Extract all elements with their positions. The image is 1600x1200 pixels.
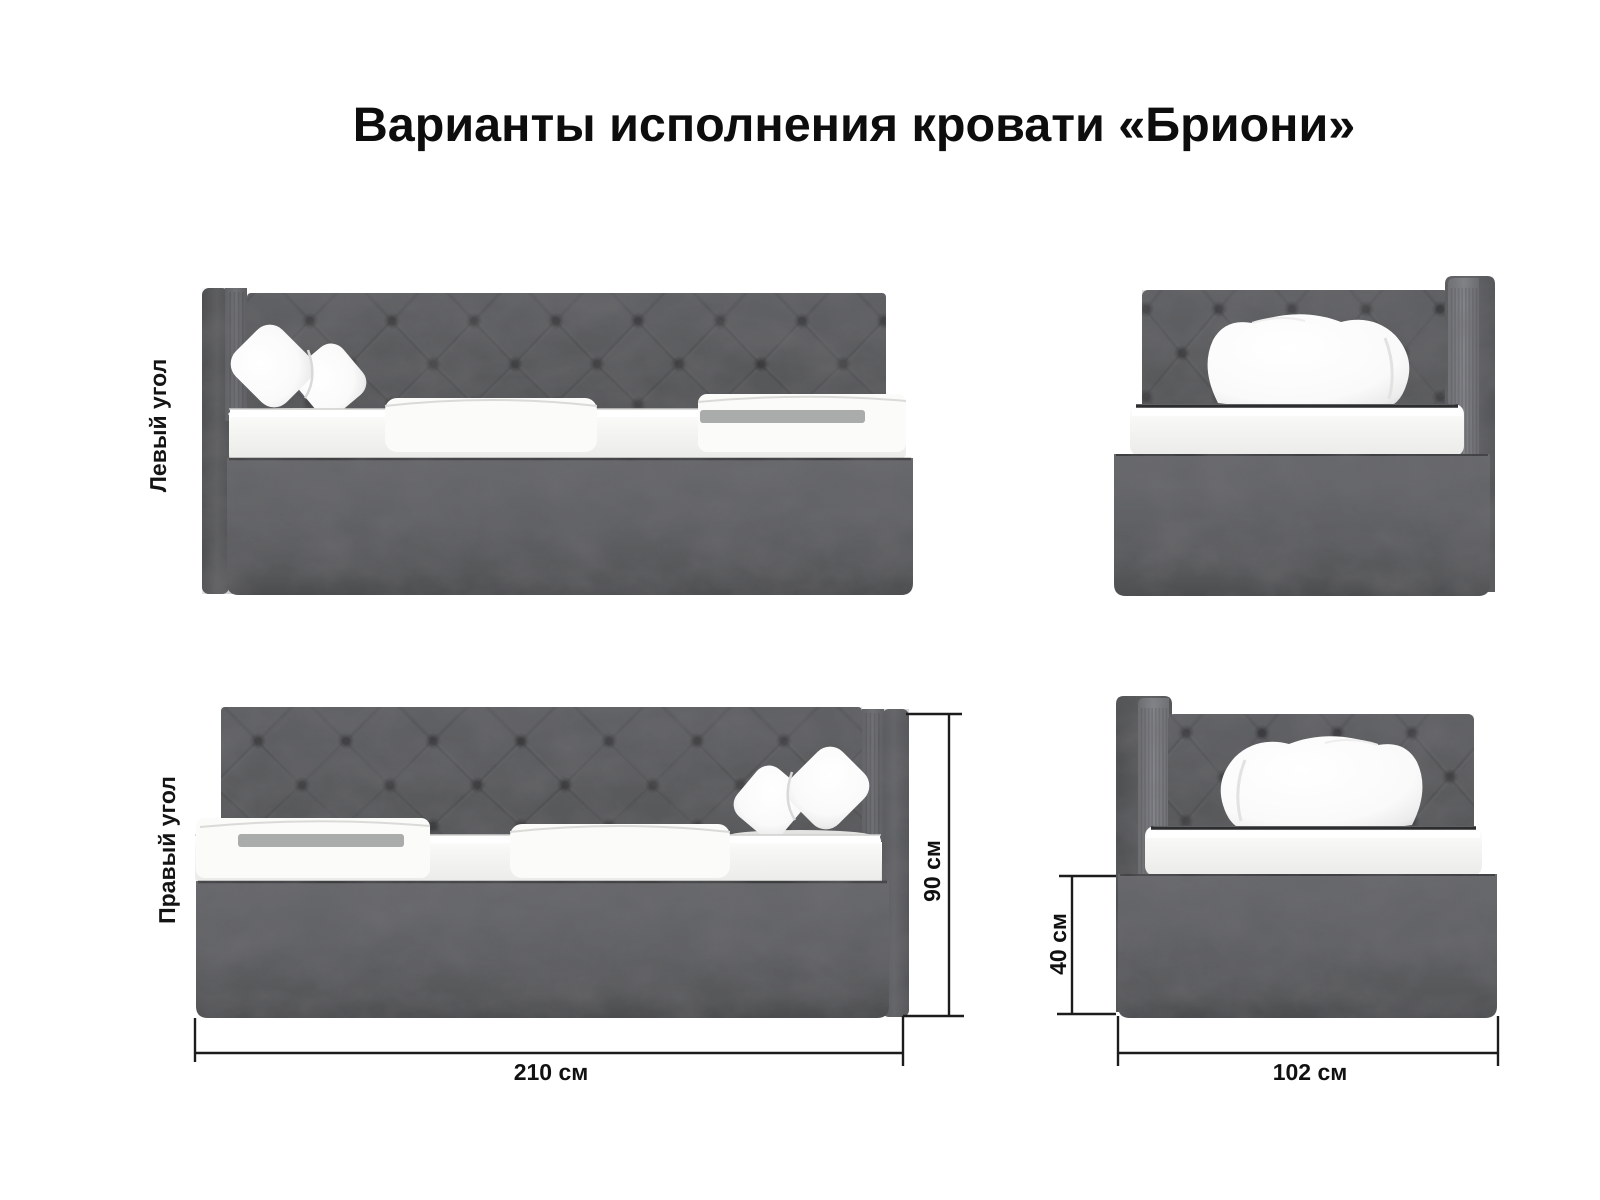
svg-text:Правый угол: Правый угол xyxy=(154,776,180,924)
svg-text:Левый угол: Левый угол xyxy=(145,359,171,492)
svg-text:40 см: 40 см xyxy=(1045,913,1071,975)
svg-text:90 см: 90 см xyxy=(919,840,945,902)
svg-text:Варианты исполнения кровати «Б: Варианты исполнения кровати «Бриони» xyxy=(353,98,1356,152)
svg-text:102 см: 102 см xyxy=(1273,1059,1348,1085)
svg-text:210 см: 210 см xyxy=(514,1059,589,1085)
